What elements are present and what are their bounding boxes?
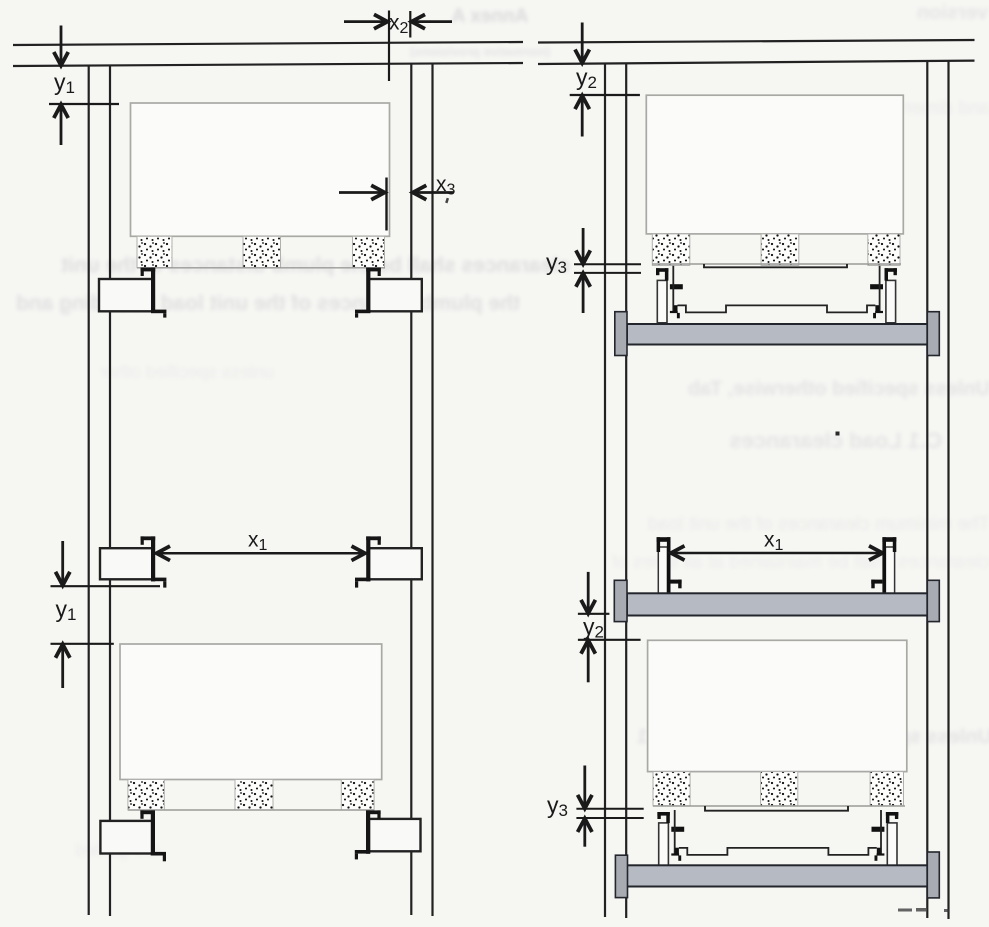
svg-text:x2: x2: [389, 12, 409, 38]
svg-text:x3: x3: [436, 173, 456, 199]
svg-text:y1: y1: [54, 69, 75, 97]
svg-text:y3: y3: [547, 792, 568, 820]
svg-text:x1: x1: [764, 529, 784, 555]
svg-text:y1: y1: [56, 596, 77, 624]
svg-text:x1: x1: [248, 529, 268, 555]
svg-text:y3: y3: [546, 249, 567, 277]
svg-text:y2: y2: [576, 64, 597, 92]
svg-text:y2: y2: [583, 614, 604, 642]
